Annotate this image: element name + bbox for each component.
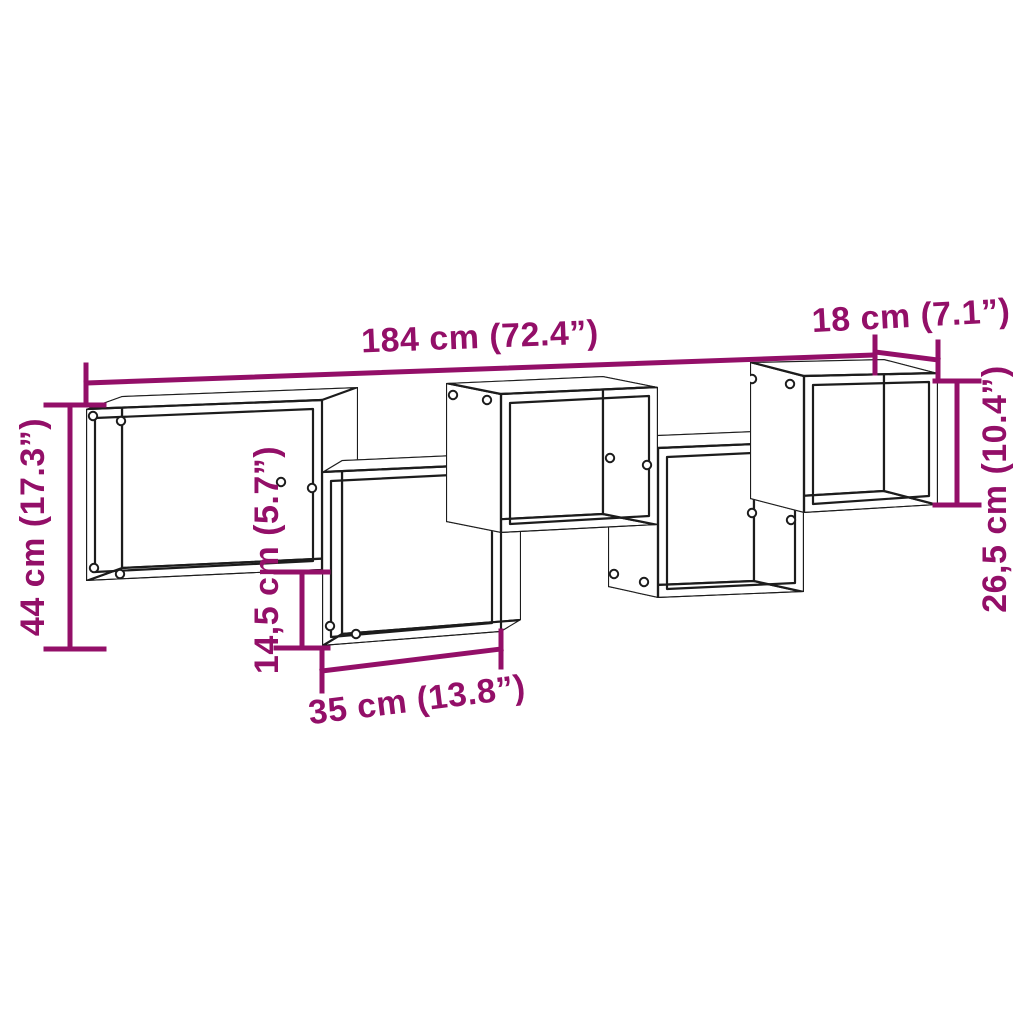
screw-hole-icon [326,622,334,630]
compartment-width-dimension-line [322,649,501,671]
screw-hole-icon [787,516,795,524]
left-panel [446,383,501,533]
screw-hole-icon [352,630,360,638]
screw-hole-icon [786,380,794,388]
shelf-compartment-5 [748,359,938,513]
screw-hole-icon [308,484,316,492]
screw-hole-icon [748,375,756,383]
screw-hole-icon [116,570,124,578]
shelf-line-drawing [86,359,938,646]
screw-hole-icon [643,461,651,469]
shelf-compartment-1 [86,387,358,581]
width-dimension-label: 184 cm (72.4”) [360,313,599,360]
left-panel [750,362,804,513]
screw-hole-icon [483,396,491,404]
screw-hole-icon [748,509,756,517]
screw-hole-icon [117,417,125,425]
screw-hole-icon [640,578,648,586]
depth-dimension-label: 18 cm (7.1”) [811,292,1011,340]
screw-hole-icon [89,412,97,420]
height-dimension-label: 44 cm (17.3”) [14,418,52,636]
depth-dimension-line [875,352,938,360]
screw-hole-icon [449,391,457,399]
screw-hole-icon [606,454,614,462]
compartment-height-dimension-label: 26,5 cm (10.4”) [976,365,1014,613]
screw-hole-icon [610,570,618,578]
screw-hole-icon [90,564,98,572]
shelf-compartment-3 [446,376,658,533]
compartment-width-dimension-label: 35 cm (13.8”) [306,668,527,732]
diagram-canvas: 184 cm (72.4”) 18 cm (7.1”) 44 cm (17.3”… [0,0,1024,1024]
wall-shelf-dimension-diagram: 184 cm (72.4”) 18 cm (7.1”) 44 cm (17.3”… [0,0,1024,1024]
stagger-offset-dimension-label: 14,5 cm (5.7”) [248,446,286,674]
